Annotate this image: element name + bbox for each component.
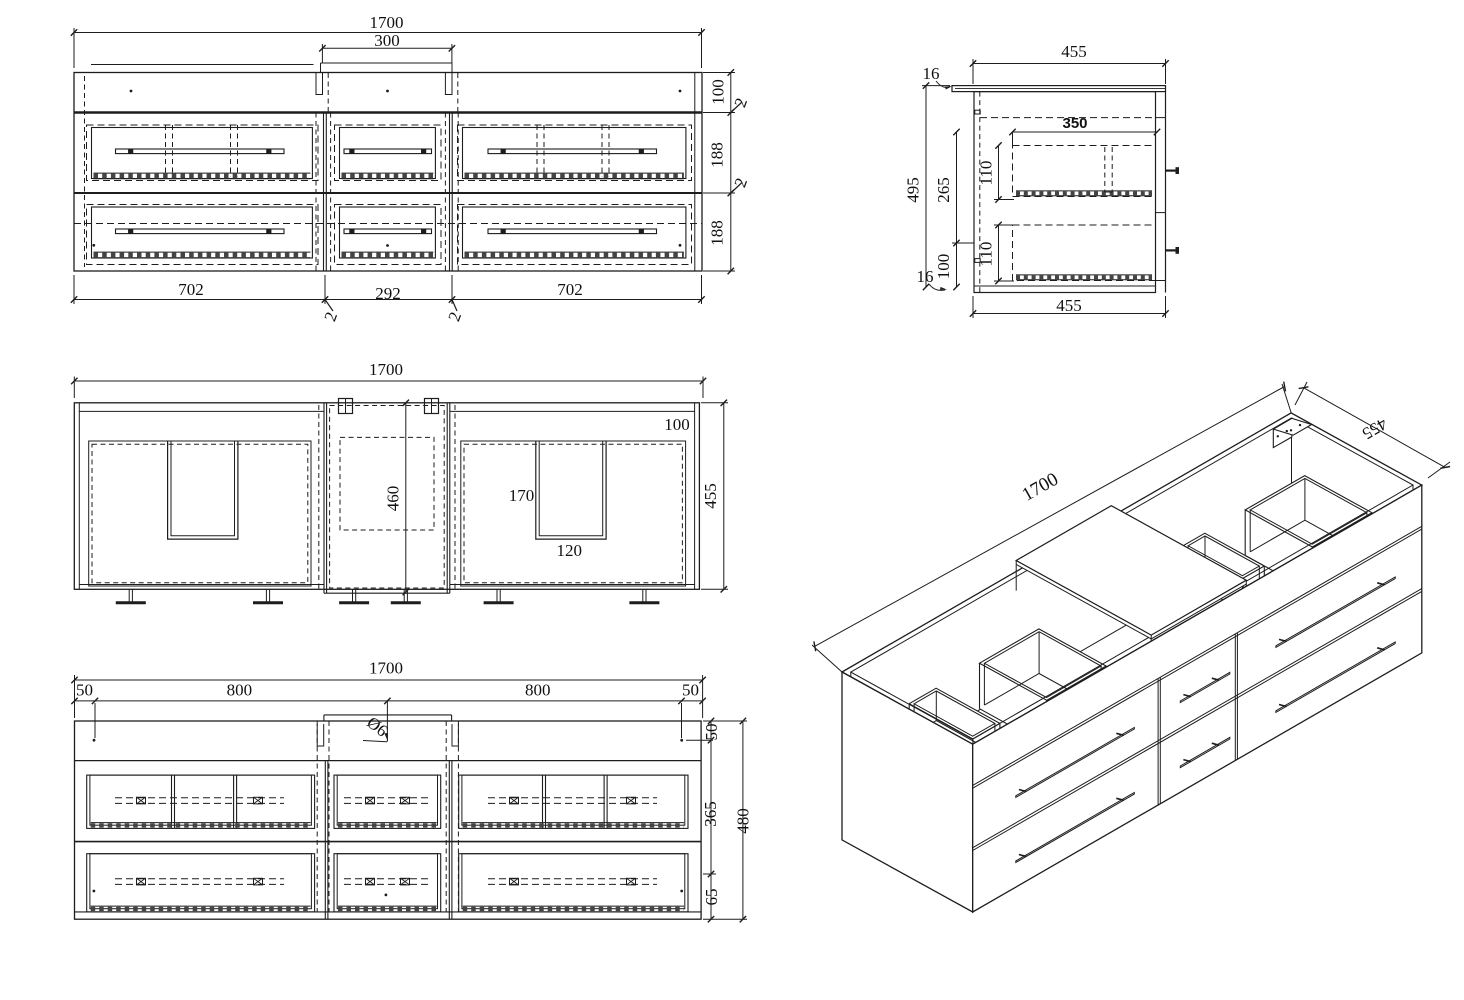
svg-text:455: 455 bbox=[1061, 42, 1087, 61]
svg-text:100: 100 bbox=[664, 415, 690, 434]
svg-text:350: 350 bbox=[1062, 115, 1087, 132]
svg-text:100: 100 bbox=[709, 79, 728, 105]
svg-text:110: 110 bbox=[977, 161, 996, 186]
svg-text:188: 188 bbox=[708, 142, 727, 168]
svg-text:800: 800 bbox=[227, 681, 253, 700]
svg-text:50: 50 bbox=[682, 681, 699, 700]
svg-text:16: 16 bbox=[917, 267, 934, 286]
svg-text:1700: 1700 bbox=[370, 13, 404, 32]
svg-text:455: 455 bbox=[701, 483, 720, 509]
svg-text:50: 50 bbox=[76, 681, 93, 700]
svg-text:188: 188 bbox=[708, 220, 727, 246]
svg-text:495: 495 bbox=[904, 177, 923, 203]
svg-text:1700: 1700 bbox=[369, 659, 403, 678]
svg-text:265: 265 bbox=[934, 177, 953, 203]
svg-text:365: 365 bbox=[701, 801, 720, 827]
svg-text:800: 800 bbox=[525, 681, 551, 700]
svg-text:100: 100 bbox=[934, 254, 953, 280]
svg-text:65: 65 bbox=[702, 889, 721, 906]
svg-text:300: 300 bbox=[374, 31, 400, 50]
svg-text:292: 292 bbox=[375, 284, 401, 303]
svg-text:110: 110 bbox=[977, 242, 996, 267]
svg-text:120: 120 bbox=[557, 541, 583, 560]
svg-text:480: 480 bbox=[734, 808, 753, 834]
svg-text:16: 16 bbox=[923, 64, 940, 83]
svg-text:460: 460 bbox=[384, 486, 403, 512]
svg-text:1700: 1700 bbox=[369, 360, 403, 379]
svg-text:170: 170 bbox=[509, 486, 535, 505]
svg-text:455: 455 bbox=[1056, 296, 1082, 315]
svg-text:50: 50 bbox=[702, 724, 721, 741]
svg-text:702: 702 bbox=[178, 280, 204, 299]
svg-text:702: 702 bbox=[557, 280, 583, 299]
